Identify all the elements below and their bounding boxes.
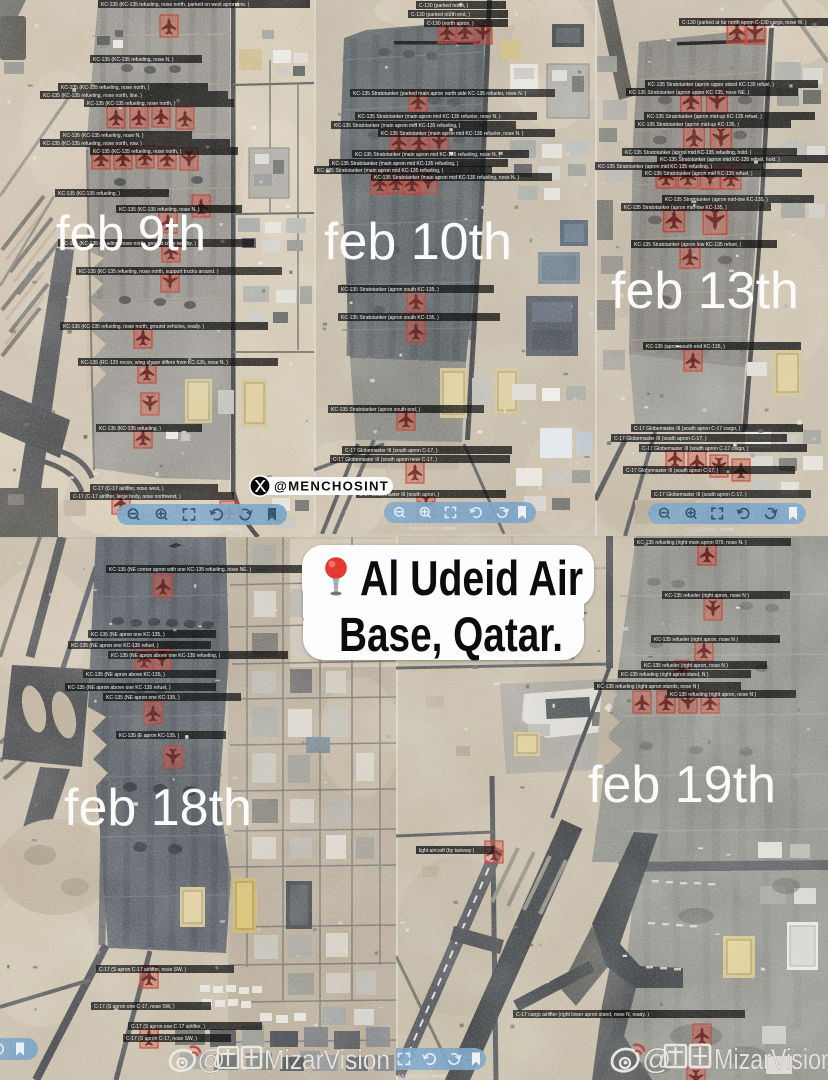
svg-text:MizarVision: MizarVision [714,1044,828,1076]
svg-text:@: @ [642,1044,671,1076]
svg-text:@: @ [197,1044,225,1075]
svg-text:MizarVision: MizarVision [264,1044,390,1075]
svg-text:Al Udeid Air: Al Udeid Air [360,552,583,606]
svg-text:@MENCHOSINT: @MENCHOSINT [274,479,389,494]
svg-text:Base, Qatar.: Base, Qatar. [339,609,563,662]
